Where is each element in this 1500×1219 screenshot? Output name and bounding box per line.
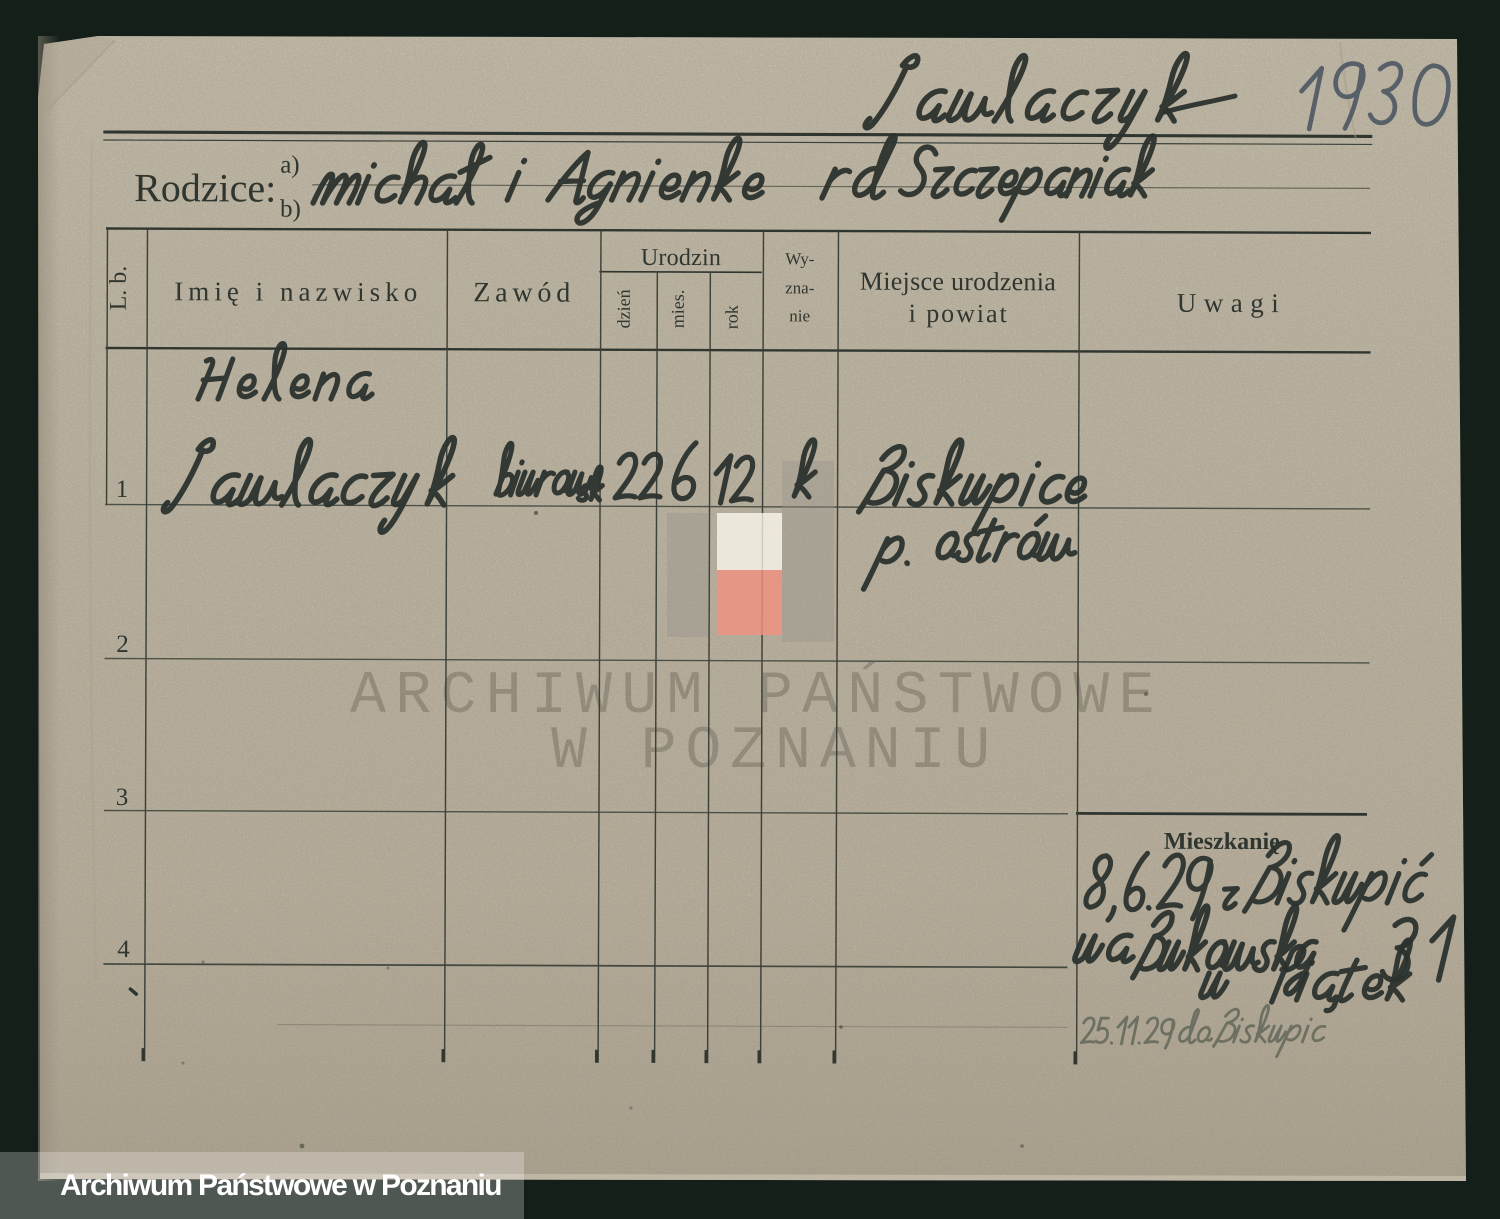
svg-text:a): a)	[280, 152, 300, 179]
svg-text:1: 1	[116, 476, 129, 503]
svg-text:Archiwum Państwowe w Poznaniu: Archiwum Państwowe w Poznaniu	[60, 1169, 501, 1202]
svg-text:Urodzin: Urodzin	[641, 245, 721, 271]
svg-text:nie: nie	[789, 306, 810, 325]
svg-text:i powiat: i powiat	[909, 299, 1008, 328]
svg-text:Zawód: Zawód	[473, 277, 570, 308]
svg-text:2: 2	[116, 631, 129, 658]
svg-text:b): b)	[280, 196, 301, 223]
svg-text:dzień: dzień	[614, 289, 634, 328]
svg-text:zna-: zna-	[785, 278, 815, 297]
svg-text:Miejsce urodzenia: Miejsce urodzenia	[860, 267, 1057, 297]
svg-text:L. b.: L. b.	[106, 266, 132, 311]
svg-text:Rodzice:: Rodzice:	[134, 165, 276, 210]
svg-text:4: 4	[117, 936, 130, 963]
svg-text:rok: rok	[722, 305, 742, 329]
svg-text:Wy-: Wy-	[785, 249, 815, 268]
svg-text:3: 3	[116, 784, 129, 811]
svg-text:Mieszkanię: Mieszkanię	[1164, 829, 1280, 855]
svg-text:W POZNANIU: W POZNANIU	[551, 718, 999, 786]
svg-text:mies.: mies.	[668, 290, 688, 329]
